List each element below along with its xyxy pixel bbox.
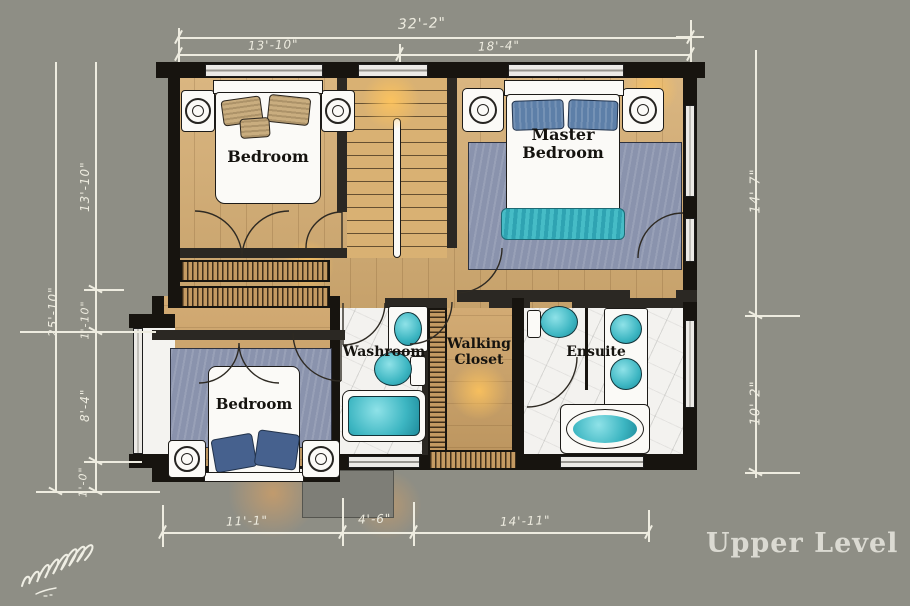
dim-label-left-2: 1'-10" <box>79 286 92 340</box>
dim-label-left-1: 13'-10" <box>78 146 92 212</box>
floor-plan-canvas: Bedroom Master Bedroom Bedroom Washroom … <box>0 0 910 606</box>
dim-label-bottom-2: 4'-6" <box>358 511 392 526</box>
dim-label-top-left: 13'-10" <box>248 37 299 53</box>
dim-line-top-segments <box>178 54 690 56</box>
dim-label-left-3: 8'-4" <box>78 372 92 422</box>
dim-label-top-right: 18'-4" <box>478 38 521 53</box>
dim-label-bottom-1: 11'-1" <box>226 513 269 528</box>
dim-label-left-overall: 25'-10" <box>46 267 60 337</box>
dim-ext <box>413 502 415 546</box>
dim-ext <box>84 461 142 463</box>
dim-ext <box>342 498 344 546</box>
signature <box>14 520 134 602</box>
dim-label-left-4: 1'-0" <box>77 452 90 498</box>
dim-label-top-overall: 32'-2" <box>398 15 447 33</box>
dim-label-right-1: 14'-7" <box>749 158 764 214</box>
dim-line-left-segments <box>95 62 97 492</box>
door-swing-arcs <box>0 0 910 606</box>
dim-label-bottom-3: 14'-11" <box>500 513 551 529</box>
dim-line-bottom <box>162 532 648 534</box>
dim-label-right-2: 10'-2" <box>749 366 764 426</box>
sheet-title: Upper Level <box>706 528 898 559</box>
